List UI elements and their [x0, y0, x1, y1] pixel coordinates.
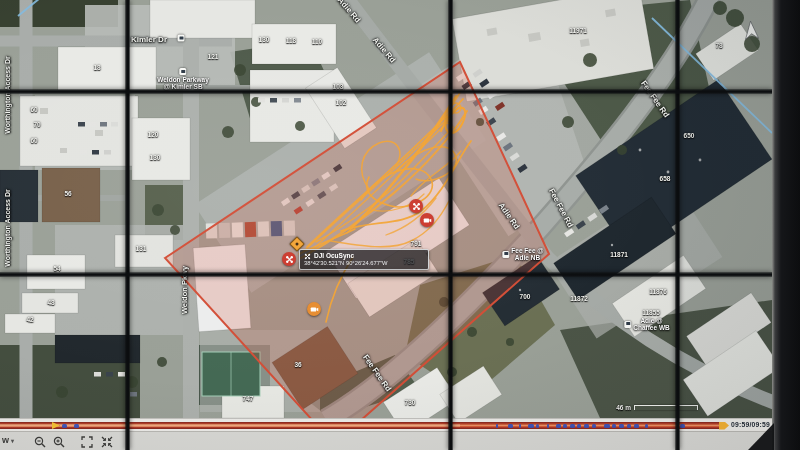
scale-label: 46 m — [616, 404, 631, 411]
satellite-map[interactable]: Kimler DrWorthington Access DrWorthingto… — [0, 0, 772, 418]
timeline-event-mark[interactable] — [536, 424, 539, 428]
aeroscope-display: Kimler DrWorthington Access DrWorthingto… — [0, 0, 772, 450]
building-number: 42 — [26, 316, 33, 323]
zoom-out-button[interactable] — [33, 435, 46, 448]
timeline-event-mark[interactable] — [528, 424, 534, 428]
timeline-event-mark[interactable] — [645, 424, 648, 428]
bus-stop-icon — [502, 251, 509, 258]
building-number: 658 — [660, 175, 671, 182]
building-number: 650 — [684, 132, 695, 139]
transit-stop[interactable]: Weldon Parkway@ Kimler SB — [157, 68, 209, 90]
building-number: 60 — [30, 106, 37, 113]
layer-dropdown-label: w — [2, 435, 9, 445]
drone-infobox[interactable]: DJI OcuSync 38°42'30.521"N 90°26'24.677"… — [299, 249, 429, 270]
bezel-vertical-2 — [448, 0, 453, 450]
timeline-strip[interactable]: 09:59/09:59 — [0, 418, 772, 432]
transit-stop-label: Weldon Parkway@ Kimler SB — [157, 76, 209, 90]
exit-fullscreen-button[interactable] — [100, 435, 113, 448]
wall-edge-bezel — [772, 0, 800, 450]
transit-stop[interactable]: Fee Fee @Adie NB — [502, 247, 543, 261]
bezel-horizontal-2 — [0, 272, 772, 277]
building-number: 747 — [243, 395, 254, 402]
building-number: 54 — [53, 265, 60, 272]
building-number: 11971 — [569, 27, 587, 34]
bottom-toolbar: w ▾ — [0, 431, 772, 450]
timeline-event-mark[interactable] — [592, 424, 596, 428]
transit-stop-label: Adie @Chaffee WB — [633, 317, 669, 331]
drone-red-marker[interactable] — [409, 199, 423, 213]
building-number: 791 — [411, 240, 422, 247]
timeline-event-mark[interactable] — [634, 424, 639, 428]
building-number: 110 — [312, 38, 323, 45]
drone-icon — [304, 253, 311, 260]
timeline-end-marker[interactable] — [719, 422, 729, 430]
timeline-event-mark[interactable] — [577, 424, 581, 428]
building-number: 700 — [520, 293, 531, 300]
building-number: 118 — [286, 37, 297, 44]
building-number: 120 — [148, 131, 159, 138]
building-number: 56 — [64, 190, 71, 197]
video-wall-photo: Kimler DrWorthington Access DrWorthingto… — [0, 0, 800, 450]
bus-stop-icon — [624, 321, 631, 328]
building-number: 11876 — [649, 288, 667, 295]
bezel-vertical-1 — [125, 0, 130, 450]
building-number: 131 — [136, 245, 147, 252]
building-number: 11872 — [570, 295, 588, 302]
layer-dropdown[interactable]: w ▾ — [2, 435, 14, 445]
timeline-event-mark[interactable] — [547, 424, 549, 428]
zoom-in-button[interactable] — [52, 435, 65, 448]
timeline-event-mark[interactable] — [612, 424, 616, 428]
transit-stop[interactable]: Adie @Chaffee WB — [624, 317, 669, 331]
building-number: 70 — [33, 121, 40, 128]
building-number: 130 — [259, 36, 270, 43]
timeline-event-mark[interactable] — [519, 424, 521, 428]
building-number: 121 — [208, 53, 219, 60]
timeline-event-mark[interactable] — [570, 424, 575, 428]
infobox-coordinates: 38°42'30.521"N 90°26'24.677"W — [304, 260, 424, 267]
drone-red-marker[interactable] — [282, 252, 296, 266]
building-number: 60 — [30, 137, 37, 144]
timeline-event-mark[interactable] — [74, 424, 79, 428]
building-number: 48 — [47, 299, 54, 306]
timeline-event-mark[interactable] — [496, 424, 498, 428]
north-arrow-icon[interactable] — [743, 19, 760, 45]
timeline-event-mark[interactable] — [508, 424, 513, 428]
building-number: 36 — [294, 361, 301, 368]
timeline-event-mark[interactable] — [584, 424, 589, 428]
timeline-event-mark[interactable] — [680, 424, 685, 428]
timeline-track-highlight — [0, 424, 460, 427]
bus-stop-icon — [179, 68, 186, 75]
timeline-event-mark[interactable] — [556, 424, 561, 428]
timeline-event-mark[interactable] — [604, 424, 610, 428]
bus-stop-icon — [178, 35, 185, 42]
building-number: 78 — [715, 42, 722, 49]
building-number: 730 — [405, 399, 416, 406]
camera-red-marker[interactable] — [420, 213, 434, 227]
timeline-event-mark[interactable] — [62, 424, 67, 428]
bezel-horizontal-1 — [0, 89, 772, 94]
map-scale: 46 m — [616, 404, 698, 411]
timeline-event-mark[interactable] — [563, 424, 567, 428]
scale-bar — [634, 405, 698, 410]
bezel-vertical-3 — [675, 0, 680, 450]
building-number: 11855 — [642, 309, 660, 316]
transit-stop-label: Fee Fee @Adie NB — [511, 247, 543, 261]
fullscreen-button[interactable] — [80, 435, 93, 448]
transit-stop[interactable] — [178, 35, 185, 42]
timeline-event-mark[interactable] — [619, 424, 624, 428]
building-number: 11871 — [610, 251, 628, 258]
satellite-imagery — [0, 0, 772, 418]
chevron-down-icon: ▾ — [11, 437, 14, 444]
building-number: 102 — [336, 99, 347, 106]
timeline-time-display: 09:59/09:59 — [731, 421, 770, 428]
building-number: 130 — [150, 154, 161, 161]
building-number: 18 — [93, 64, 100, 71]
infobox-title: DJI OcuSync — [314, 252, 354, 260]
camera-orange-marker[interactable] — [307, 302, 321, 316]
timeline-event-mark[interactable] — [627, 424, 631, 428]
